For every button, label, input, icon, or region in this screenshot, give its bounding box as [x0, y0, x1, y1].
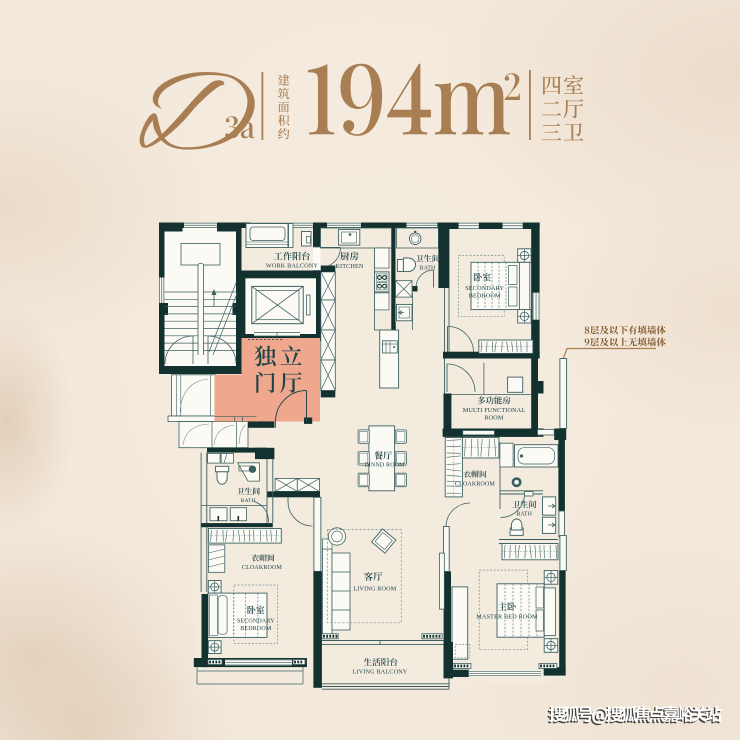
svg-text:DINND ROOM: DINND ROOM: [364, 463, 405, 469]
svg-text:LIVING ROOM: LIVING ROOM: [353, 586, 396, 593]
svg-text:BEDROOM: BEDROOM: [469, 293, 501, 300]
svg-text:BATH: BATH: [516, 512, 532, 518]
svg-text:CLOAKROOM: CLOAKROOM: [455, 482, 496, 488]
svg-text:SECONDARY: SECONDARY: [465, 285, 504, 292]
svg-text:MASTER BED ROOM: MASTER BED ROOM: [476, 614, 538, 621]
svg-text:SECONDARY: SECONDARY: [237, 619, 275, 625]
svg-text:BEDROOM: BEDROOM: [240, 626, 272, 632]
svg-text:MULTI FUNCTIONAL: MULTI FUNCTIONAL: [463, 407, 526, 414]
svg-text:KITCHEN: KITCHEN: [335, 263, 364, 270]
svg-text:LIVING BALCONY: LIVING BALCONY: [353, 669, 408, 676]
svg-text:ROOM: ROOM: [484, 415, 504, 422]
svg-text:WORK BALCONY: WORK BALCONY: [266, 263, 319, 270]
svg-text:CLOAKROOM: CLOAKROOM: [242, 565, 283, 571]
svg-text:BATH: BATH: [241, 498, 256, 504]
